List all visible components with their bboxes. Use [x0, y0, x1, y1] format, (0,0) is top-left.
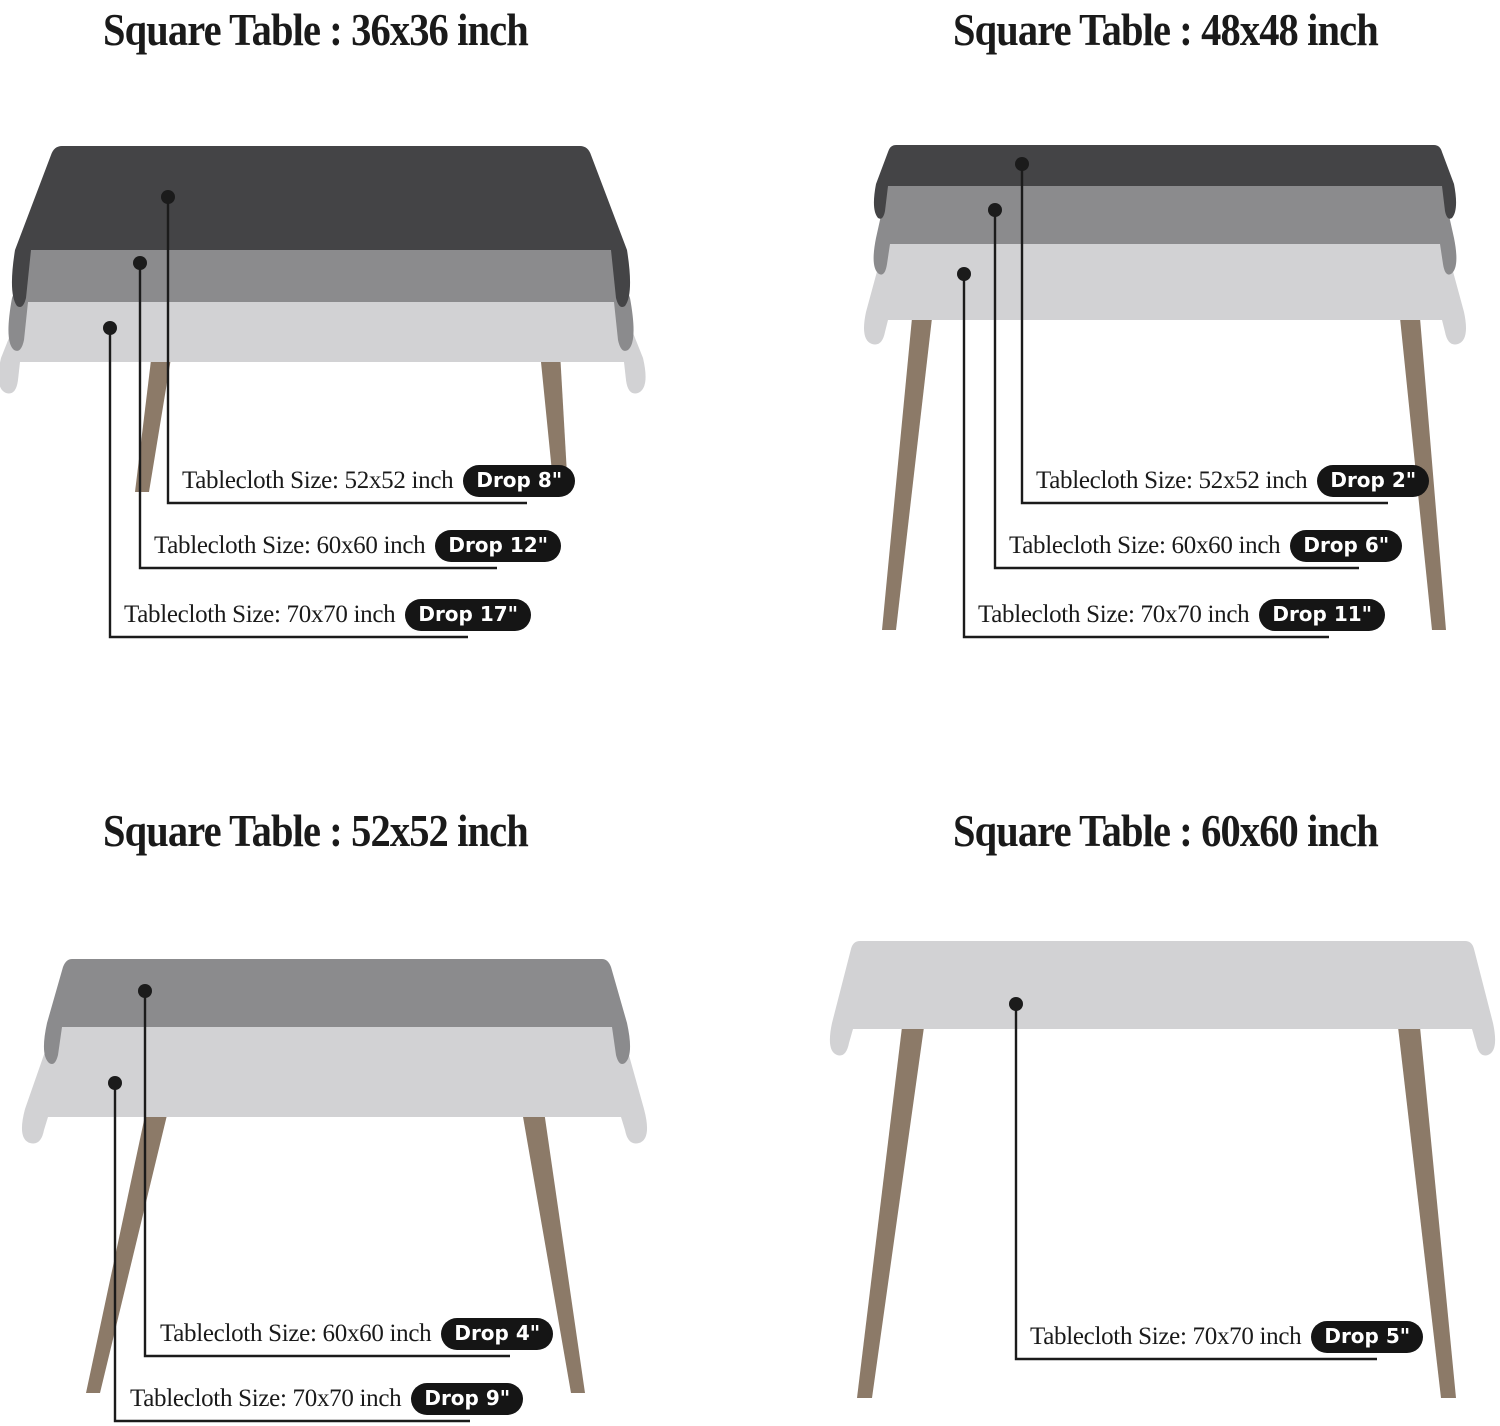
- callout-dot: [988, 203, 1002, 217]
- tablecloth-70x70-layer: [830, 941, 1495, 1056]
- table-leg-left: [882, 318, 932, 630]
- drop-badge: Drop 4": [441, 1318, 553, 1350]
- callout-dot: [1009, 997, 1023, 1011]
- tablecloth-size-text: Tablecloth Size: 52x52 inch: [182, 467, 453, 495]
- table-leg-left: [86, 1111, 168, 1393]
- tablecloth-label: Tablecloth Size: 70x70 inch Drop 5": [1030, 1317, 1423, 1357]
- callout-dot: [138, 984, 152, 998]
- drop-badge: Drop 12": [435, 530, 561, 562]
- panel-table-36x36: Square Table : 36x36 inch Tablecloth Siz…: [0, 0, 750, 713]
- callout-dot: [957, 267, 971, 281]
- tablecloth-size-text: Tablecloth Size: 70x70 inch: [130, 1385, 401, 1413]
- tablecloth-size-text: Tablecloth Size: 60x60 inch: [160, 1320, 431, 1348]
- panel-table-52x52: Square Table : 52x52 inch Tablecloth Siz…: [0, 713, 750, 1426]
- callout-dot: [103, 321, 117, 335]
- callout-dot: [108, 1076, 122, 1090]
- drop-badge: Drop 17": [405, 599, 531, 631]
- callout-line: [1016, 1004, 1377, 1359]
- drop-badge: Drop 11": [1259, 599, 1385, 631]
- drop-badge: Drop 6": [1290, 530, 1402, 562]
- drop-badge: Drop 8": [463, 465, 575, 497]
- drop-badge: Drop 9": [411, 1383, 523, 1415]
- tablecloth-size-text: Tablecloth Size: 70x70 inch: [124, 601, 395, 629]
- tablecloth-label: Tablecloth Size: 70x70 inch Drop 11": [978, 595, 1385, 635]
- callout-dot: [133, 256, 147, 270]
- table-leg-left: [857, 1027, 924, 1398]
- tablecloth-size-guide: Square Table : 36x36 inch Tablecloth Siz…: [0, 0, 1500, 1426]
- drop-badge: Drop 5": [1311, 1321, 1423, 1353]
- tablecloth-label: Tablecloth Size: 60x60 inch Drop 6": [1009, 526, 1402, 566]
- callout-line: [964, 274, 1329, 637]
- callout-dot: [161, 190, 175, 204]
- tablecloth-size-text: Tablecloth Size: 60x60 inch: [154, 532, 425, 560]
- callout-line: [115, 1083, 470, 1421]
- panel-table-48x48: Square Table : 48x48 inch Tablecloth Siz…: [750, 0, 1500, 713]
- tablecloth-size-text: Tablecloth Size: 60x60 inch: [1009, 532, 1280, 560]
- panel-table-60x60: Square Table : 60x60 inch Tablecloth Siz…: [750, 713, 1500, 1426]
- tablecloth-label: Tablecloth Size: 52x52 inch Drop 2": [1036, 461, 1429, 501]
- tablecloth-label: Tablecloth Size: 60x60 inch Drop 12": [154, 526, 561, 566]
- drop-badge: Drop 2": [1317, 465, 1429, 497]
- tablecloth-size-text: Tablecloth Size: 52x52 inch: [1036, 467, 1307, 495]
- tablecloth-label: Tablecloth Size: 70x70 inch Drop 17": [124, 595, 531, 635]
- tablecloth-size-text: Tablecloth Size: 70x70 inch: [1030, 1323, 1301, 1351]
- tablecloth-70x70-layer: [864, 242, 1466, 345]
- tablecloth-label: Tablecloth Size: 52x52 inch Drop 8": [182, 461, 575, 501]
- callout-dot: [1015, 157, 1029, 171]
- tablecloth-label: Tablecloth Size: 60x60 inch Drop 4": [160, 1314, 553, 1354]
- tablecloth-label: Tablecloth Size: 70x70 inch Drop 9": [130, 1379, 523, 1419]
- tablecloth-size-text: Tablecloth Size: 70x70 inch: [978, 601, 1249, 629]
